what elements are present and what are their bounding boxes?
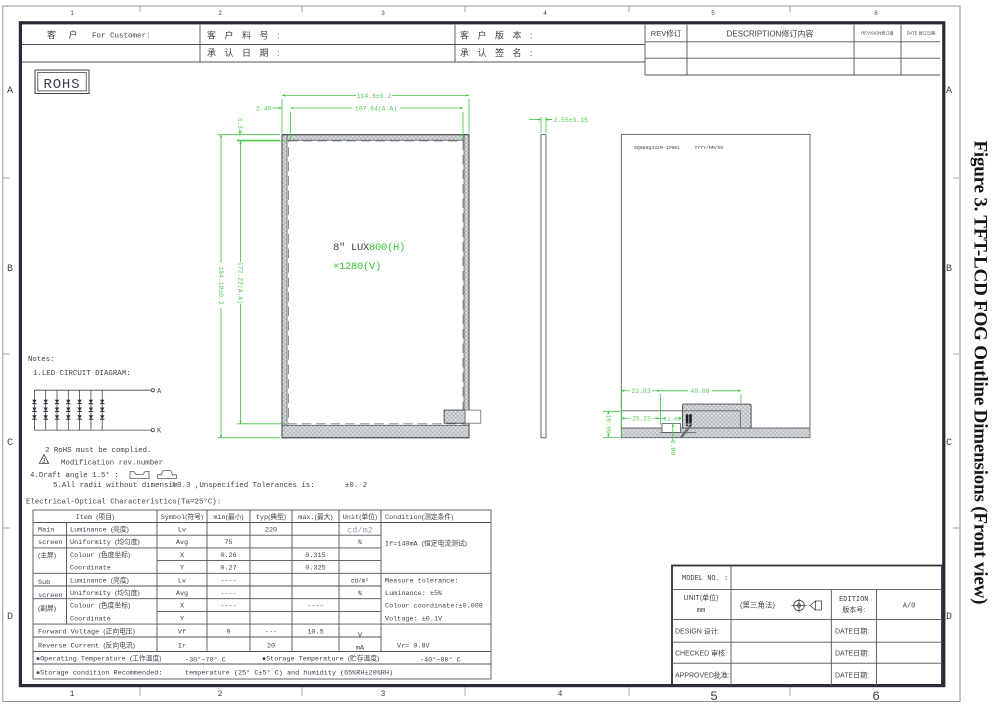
svg-text:4: 4: [558, 690, 563, 699]
svg-text:0.26: 0.26: [220, 552, 236, 560]
svg-text:6: 6: [872, 689, 880, 704]
svg-text:Colour (色度坐标): Colour (色度坐标): [70, 550, 130, 560]
svg-text:cd/m2: cd/m2: [347, 526, 373, 536]
svg-text:承 认 签 名 :: 承 认 签 名 :: [460, 47, 536, 58]
svg-text:75: 75: [224, 539, 232, 547]
svg-text:screen: screen: [38, 539, 62, 547]
svg-text:20: 20: [267, 643, 275, 651]
svg-text:----: ----: [307, 603, 323, 611]
svg-text:ROHS: ROHS: [44, 77, 81, 93]
svg-text:Coordinate: Coordinate: [70, 615, 111, 623]
svg-text:10.5: 10.5: [307, 628, 323, 636]
svg-text:184.10±0.2: 184.10±0.2: [217, 266, 224, 305]
svg-text:●Storage condition Recommended: ●Storage condition Recommended:: [36, 670, 162, 678]
svg-text:承 认 日 期 :: 承 认 日 期 :: [207, 47, 283, 58]
svg-text:Luminance (亮度): Luminance (亮度): [70, 525, 129, 535]
svg-text:2.55±0.15: 2.55±0.15: [554, 117, 589, 124]
svg-text:客 户 料 号 :: 客 户 料 号 :: [207, 30, 283, 41]
svg-text:Uniformity (均匀度): Uniformity (均匀度): [70, 537, 140, 547]
svg-text:2: 2: [218, 10, 222, 17]
svg-text:Luminance: ±5%: Luminance: ±5%: [385, 590, 443, 598]
svg-text:MODEL NO. :: MODEL NO. :: [682, 575, 728, 583]
svg-text:SQ088Q331M-17B01 YYYY/MM/D: SQ088Q331M-17B01 YYYY/MM/DD: [634, 145, 723, 151]
svg-text:(主屏): (主屏): [38, 551, 56, 560]
svg-text:EDITION: EDITION: [839, 596, 868, 604]
svg-text:0.315: 0.315: [305, 552, 325, 560]
svg-text:Main: Main: [38, 527, 54, 535]
svg-text:Electrical-Optical Characteris: Electrical-Optical Characteristics(Ta=25…: [26, 498, 221, 507]
svg-text:UNIT(单位): UNIT(单位): [684, 593, 719, 602]
svg-text:4.Draft angle 1.5° :: 4.Draft angle 1.5° :: [30, 471, 119, 480]
svg-text:C: C: [7, 438, 13, 449]
svg-text:DATE 修订日期: DATE 修订日期: [907, 30, 936, 37]
svg-text:Unit(单位): Unit(单位): [343, 512, 377, 522]
svg-text:16.00: 16.00: [604, 415, 611, 434]
svg-text:11.00: 11.00: [664, 416, 681, 423]
svg-text:×1280(V): ×1280(V): [333, 261, 381, 273]
svg-text:Lv: Lv: [178, 577, 186, 585]
svg-text:Ir: Ir: [178, 643, 186, 651]
svg-text:typ(典型): typ(典型): [256, 512, 286, 522]
svg-text:screen: screen: [38, 592, 62, 600]
svg-text:REV修订: REV修订: [651, 28, 682, 38]
svg-text:DATE日期:: DATE日期:: [835, 650, 869, 658]
svg-text:D: D: [7, 612, 13, 623]
svg-text:5.All radii without dimensi№0.: 5.All radii without dimensi№0.3 ,Unspeci…: [53, 482, 315, 490]
svg-text:Coordinate: Coordinate: [70, 565, 111, 573]
svg-text:Forward Voltage (正向电压): Forward Voltage (正向电压): [38, 626, 135, 636]
svg-text:(副屏): (副屏): [38, 604, 56, 613]
svg-text:±0. 2: ±0. 2: [345, 482, 367, 490]
svg-text:107.64(A.A): 107.64(A.A): [355, 105, 397, 112]
svg-text:Vf: Vf: [178, 628, 186, 636]
svg-text:220: 220: [265, 527, 277, 535]
svg-text:Avg: Avg: [176, 590, 188, 598]
svg-text:9: 9: [226, 628, 230, 636]
svg-text:Vr= 0.8V: Vr= 0.8V: [397, 643, 431, 651]
svg-text:114.6±0.2: 114.6±0.2: [357, 93, 392, 100]
svg-text:----: ----: [220, 603, 236, 611]
svg-text:----: ----: [220, 590, 236, 598]
svg-text:V: V: [358, 632, 363, 640]
svg-text:Colour coordinate:±0.008: Colour coordinate:±0.008: [385, 603, 483, 611]
svg-text:DATE日期:: DATE日期:: [835, 672, 869, 680]
svg-text:temperature (25° C±5° C) and h: temperature (25° C±5° C) and humidity (6…: [185, 669, 393, 678]
svg-text:If=140mA (恒定电流测试): If=140mA (恒定电流测试): [385, 539, 467, 549]
svg-text:2: 2: [218, 690, 223, 699]
svg-text:A: A: [7, 86, 13, 97]
svg-text:23.83: 23.83: [631, 388, 650, 395]
svg-text:A/0: A/0: [903, 603, 916, 611]
svg-text:Sub: Sub: [38, 579, 50, 587]
svg-text:4: 4: [543, 10, 547, 17]
svg-text:D: D: [946, 612, 952, 623]
svg-text:CHECKED 审核:: CHECKED 审核:: [675, 649, 727, 658]
svg-text:1: 1: [70, 690, 75, 699]
svg-text:X: X: [180, 603, 184, 611]
svg-text:5: 5: [711, 10, 715, 17]
svg-text:1.LED CIRCUIT DIAGRAM:: 1.LED CIRCUIT DIAGRAM:: [33, 370, 131, 378]
svg-text:-40°~80° C: -40°~80° C: [420, 656, 461, 665]
svg-text:Notes:: Notes:: [28, 356, 55, 364]
svg-text:-30°~70° C: -30°~70° C: [185, 656, 226, 665]
svg-text:Item (项目): Item (项目): [76, 513, 115, 522]
svg-text:客 户 版 本 :: 客 户 版 本 :: [460, 30, 536, 41]
svg-text:DESCRIPTION修订内容: DESCRIPTION修订内容: [727, 29, 814, 39]
svg-text:C: C: [946, 438, 952, 449]
svg-text:REVISION修订者: REVISION修订者: [861, 30, 894, 37]
svg-text:A: A: [946, 86, 952, 97]
svg-text:Condition(测定条件): Condition(测定条件): [385, 512, 453, 522]
svg-text:5: 5: [710, 689, 718, 704]
svg-text:mm: mm: [697, 607, 705, 615]
svg-text:Symbol(符号): Symbol(符号): [161, 512, 204, 522]
svg-text:800(H): 800(H): [369, 242, 405, 254]
svg-text:48.80: 48.80: [690, 388, 709, 395]
svg-text:●Storage Temperature (贮存温度): ●Storage Temperature (贮存温度): [262, 654, 379, 664]
svg-text:---: ---: [265, 628, 277, 636]
svg-text:APPROVED批准:: APPROVED批准:: [675, 671, 730, 680]
svg-text:25.23: 25.23: [632, 416, 651, 423]
svg-text:3.34: 3.34: [236, 117, 243, 133]
svg-text:172.22(A.A): 172.22(A.A): [237, 262, 244, 304]
svg-text:Measure tolerance:: Measure tolerance:: [385, 577, 458, 585]
svg-text:Reverse Current (反向电流): Reverse Current (反向电流): [38, 641, 135, 651]
svg-text:%: %: [358, 539, 363, 547]
svg-text:----: ----: [220, 577, 236, 585]
svg-text:Uniformity (均匀度): Uniformity (均匀度): [70, 588, 140, 598]
svg-text:2 RoHS must be complied.: 2 RoHS must be complied.: [45, 447, 151, 455]
svg-text:%: %: [358, 590, 363, 598]
svg-text:Avg: Avg: [176, 539, 188, 547]
svg-text:客 户: 客 户: [47, 29, 83, 40]
svg-text:For Customer:: For Customer:: [92, 33, 151, 41]
svg-text:DATE日期:: DATE日期:: [835, 628, 869, 636]
svg-text:6: 6: [874, 10, 878, 17]
svg-text:Voltage: ±0.1V: Voltage: ±0.1V: [385, 615, 443, 623]
svg-text:K: K: [157, 428, 162, 436]
svg-text:8.00: 8.00: [669, 440, 676, 456]
svg-text:3.: 3.: [42, 457, 49, 464]
svg-text:Lv: Lv: [178, 527, 186, 535]
svg-text:0.27: 0.27: [220, 565, 236, 573]
svg-text:3: 3: [381, 690, 386, 699]
svg-text:版本号:: 版本号:: [842, 605, 865, 614]
svg-text:●Operating Temperature (工作温度): ●Operating Temperature (工作温度): [36, 654, 162, 664]
svg-text:Figure 3. TFT-LCD FOG Outline: Figure 3. TFT-LCD FOG Outline Dimensions…: [970, 141, 991, 605]
svg-text:Y: Y: [180, 615, 184, 623]
svg-text:B: B: [7, 264, 13, 275]
svg-text:max.(最大): max.(最大): [298, 512, 332, 522]
svg-text:3: 3: [381, 10, 385, 17]
svg-text:Modification rev.number: Modification rev.number: [61, 460, 163, 468]
svg-text:B: B: [946, 264, 952, 275]
svg-text:8" LUX: 8" LUX: [333, 242, 370, 254]
svg-text:DESIGN 设计:: DESIGN 设计:: [675, 627, 720, 636]
svg-text:min(最小): min(最小): [213, 512, 243, 522]
svg-text:Colour (色度坐标): Colour (色度坐标): [70, 601, 130, 611]
svg-text:mA: mA: [356, 645, 365, 653]
svg-text:X: X: [180, 552, 184, 560]
svg-text:A: A: [157, 388, 162, 396]
svg-text:cd/m²: cd/m²: [351, 577, 369, 584]
svg-text:Luminance (亮度): Luminance (亮度): [70, 575, 129, 585]
svg-text:Y: Y: [180, 565, 184, 573]
svg-text:0.325: 0.325: [305, 565, 325, 573]
svg-text:(第三角法): (第三角法): [740, 600, 775, 610]
svg-text:1: 1: [70, 10, 74, 17]
svg-text:2.49: 2.49: [256, 105, 272, 112]
